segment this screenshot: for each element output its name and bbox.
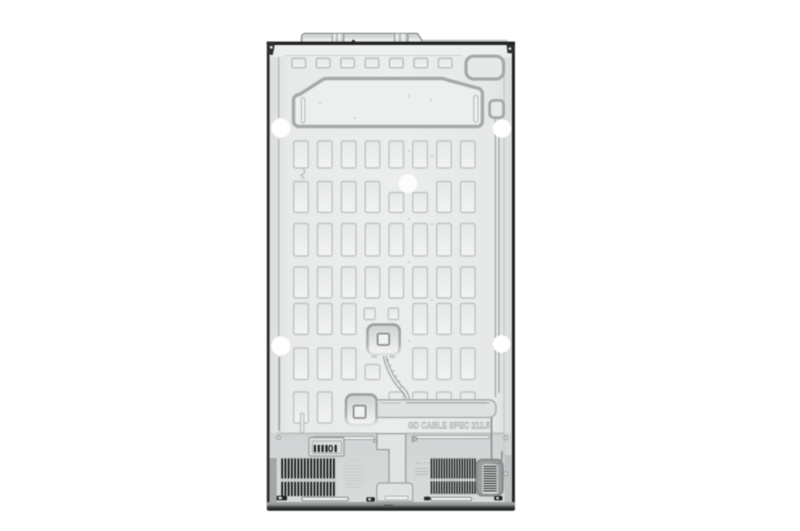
svg-text:GD CABLE SPEC 212.5: GD CABLE SPEC 212.5 [408,421,491,432]
